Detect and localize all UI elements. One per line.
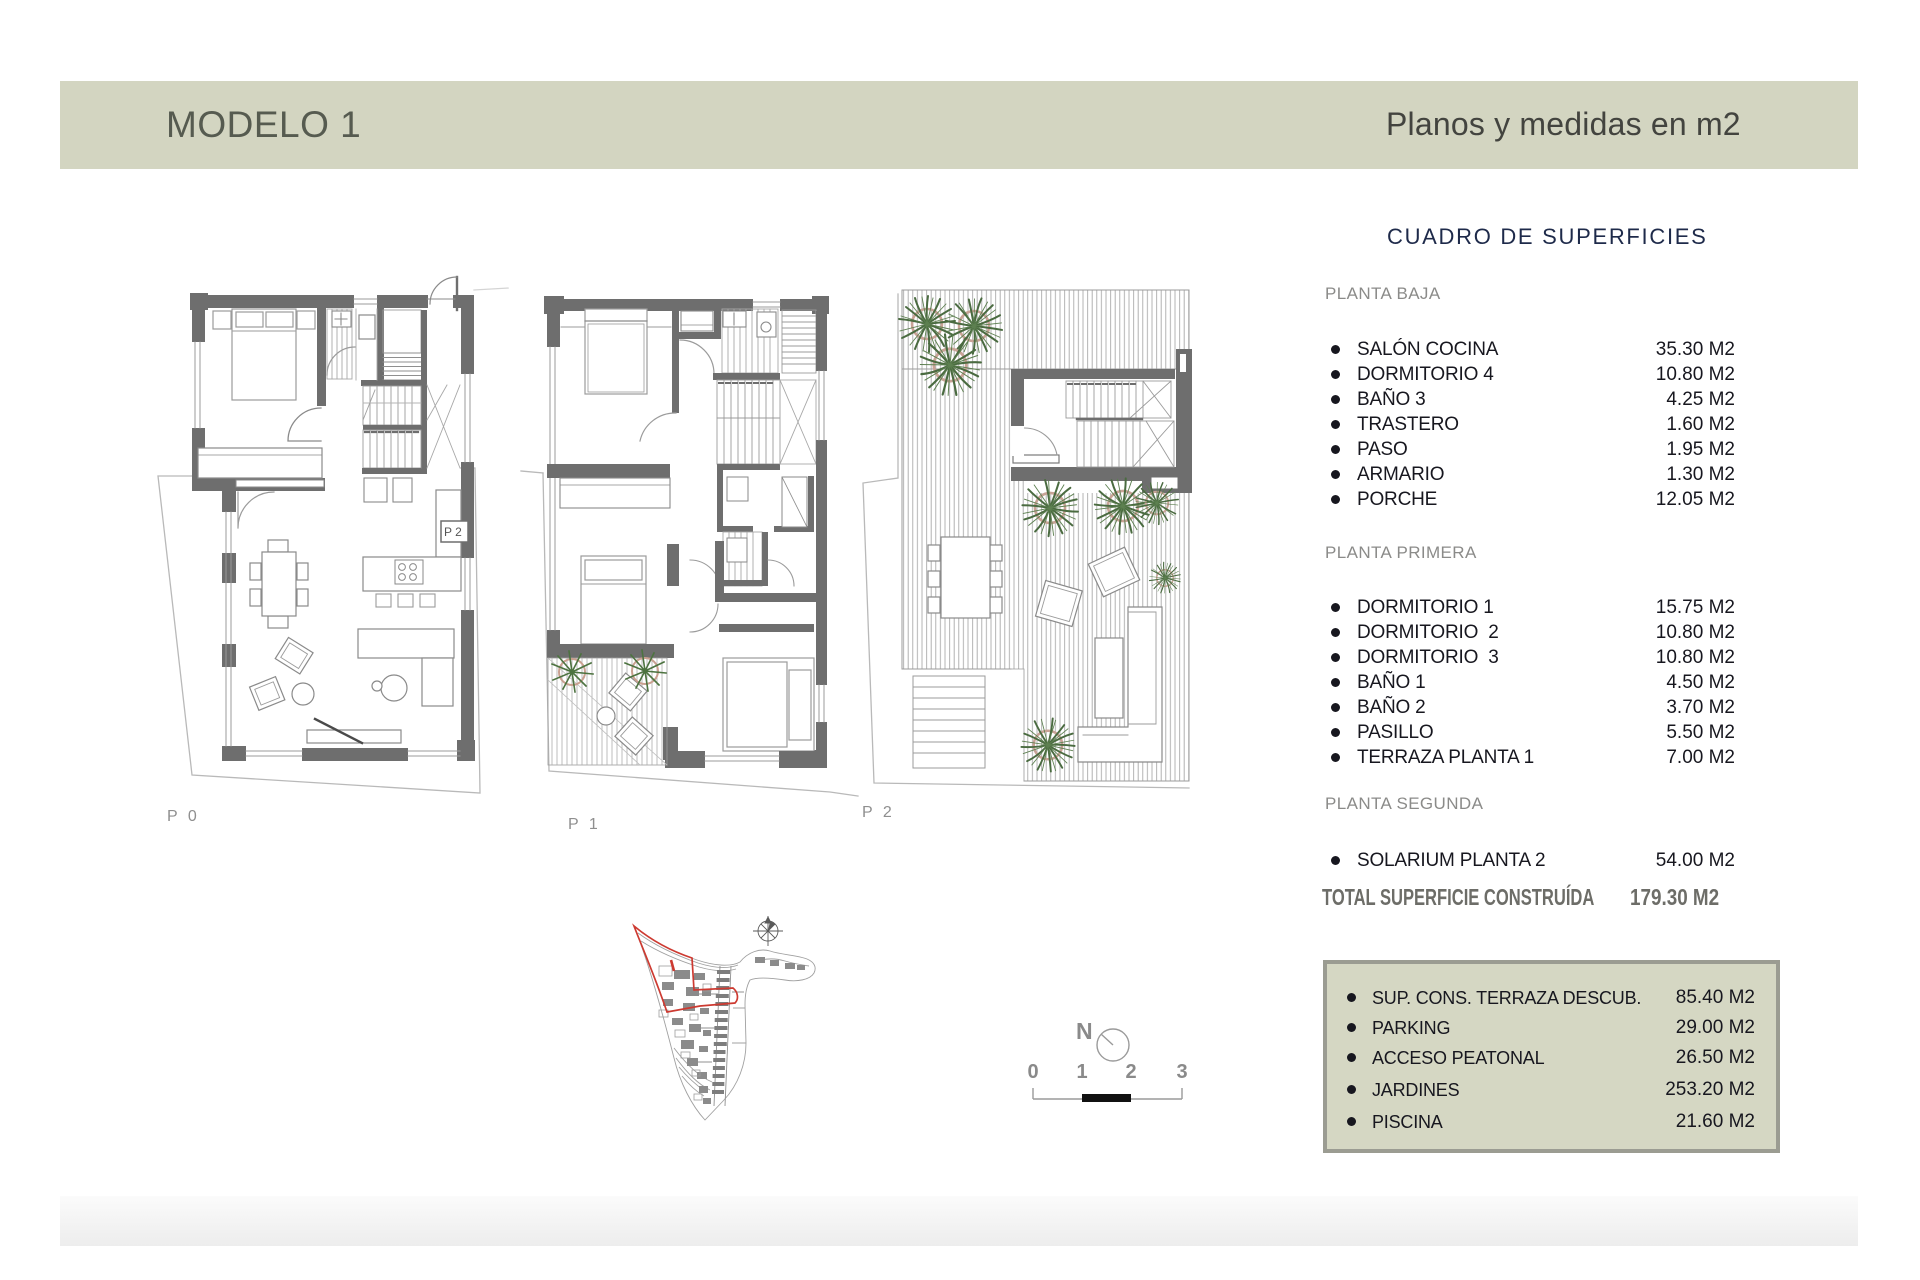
svg-text:P 2: P 2	[862, 804, 895, 821]
svg-text:2: 2	[1125, 1061, 1136, 1083]
svg-text:P 1: P 1	[568, 816, 601, 833]
svg-text:1: 1	[1076, 1061, 1087, 1083]
svg-text:0: 0	[1027, 1061, 1038, 1083]
svg-text:N: N	[1076, 1018, 1093, 1044]
svg-text:3: 3	[1176, 1061, 1187, 1083]
svg-text:P 0: P 0	[167, 808, 200, 825]
svg-text:P 2: P 2	[444, 525, 462, 539]
